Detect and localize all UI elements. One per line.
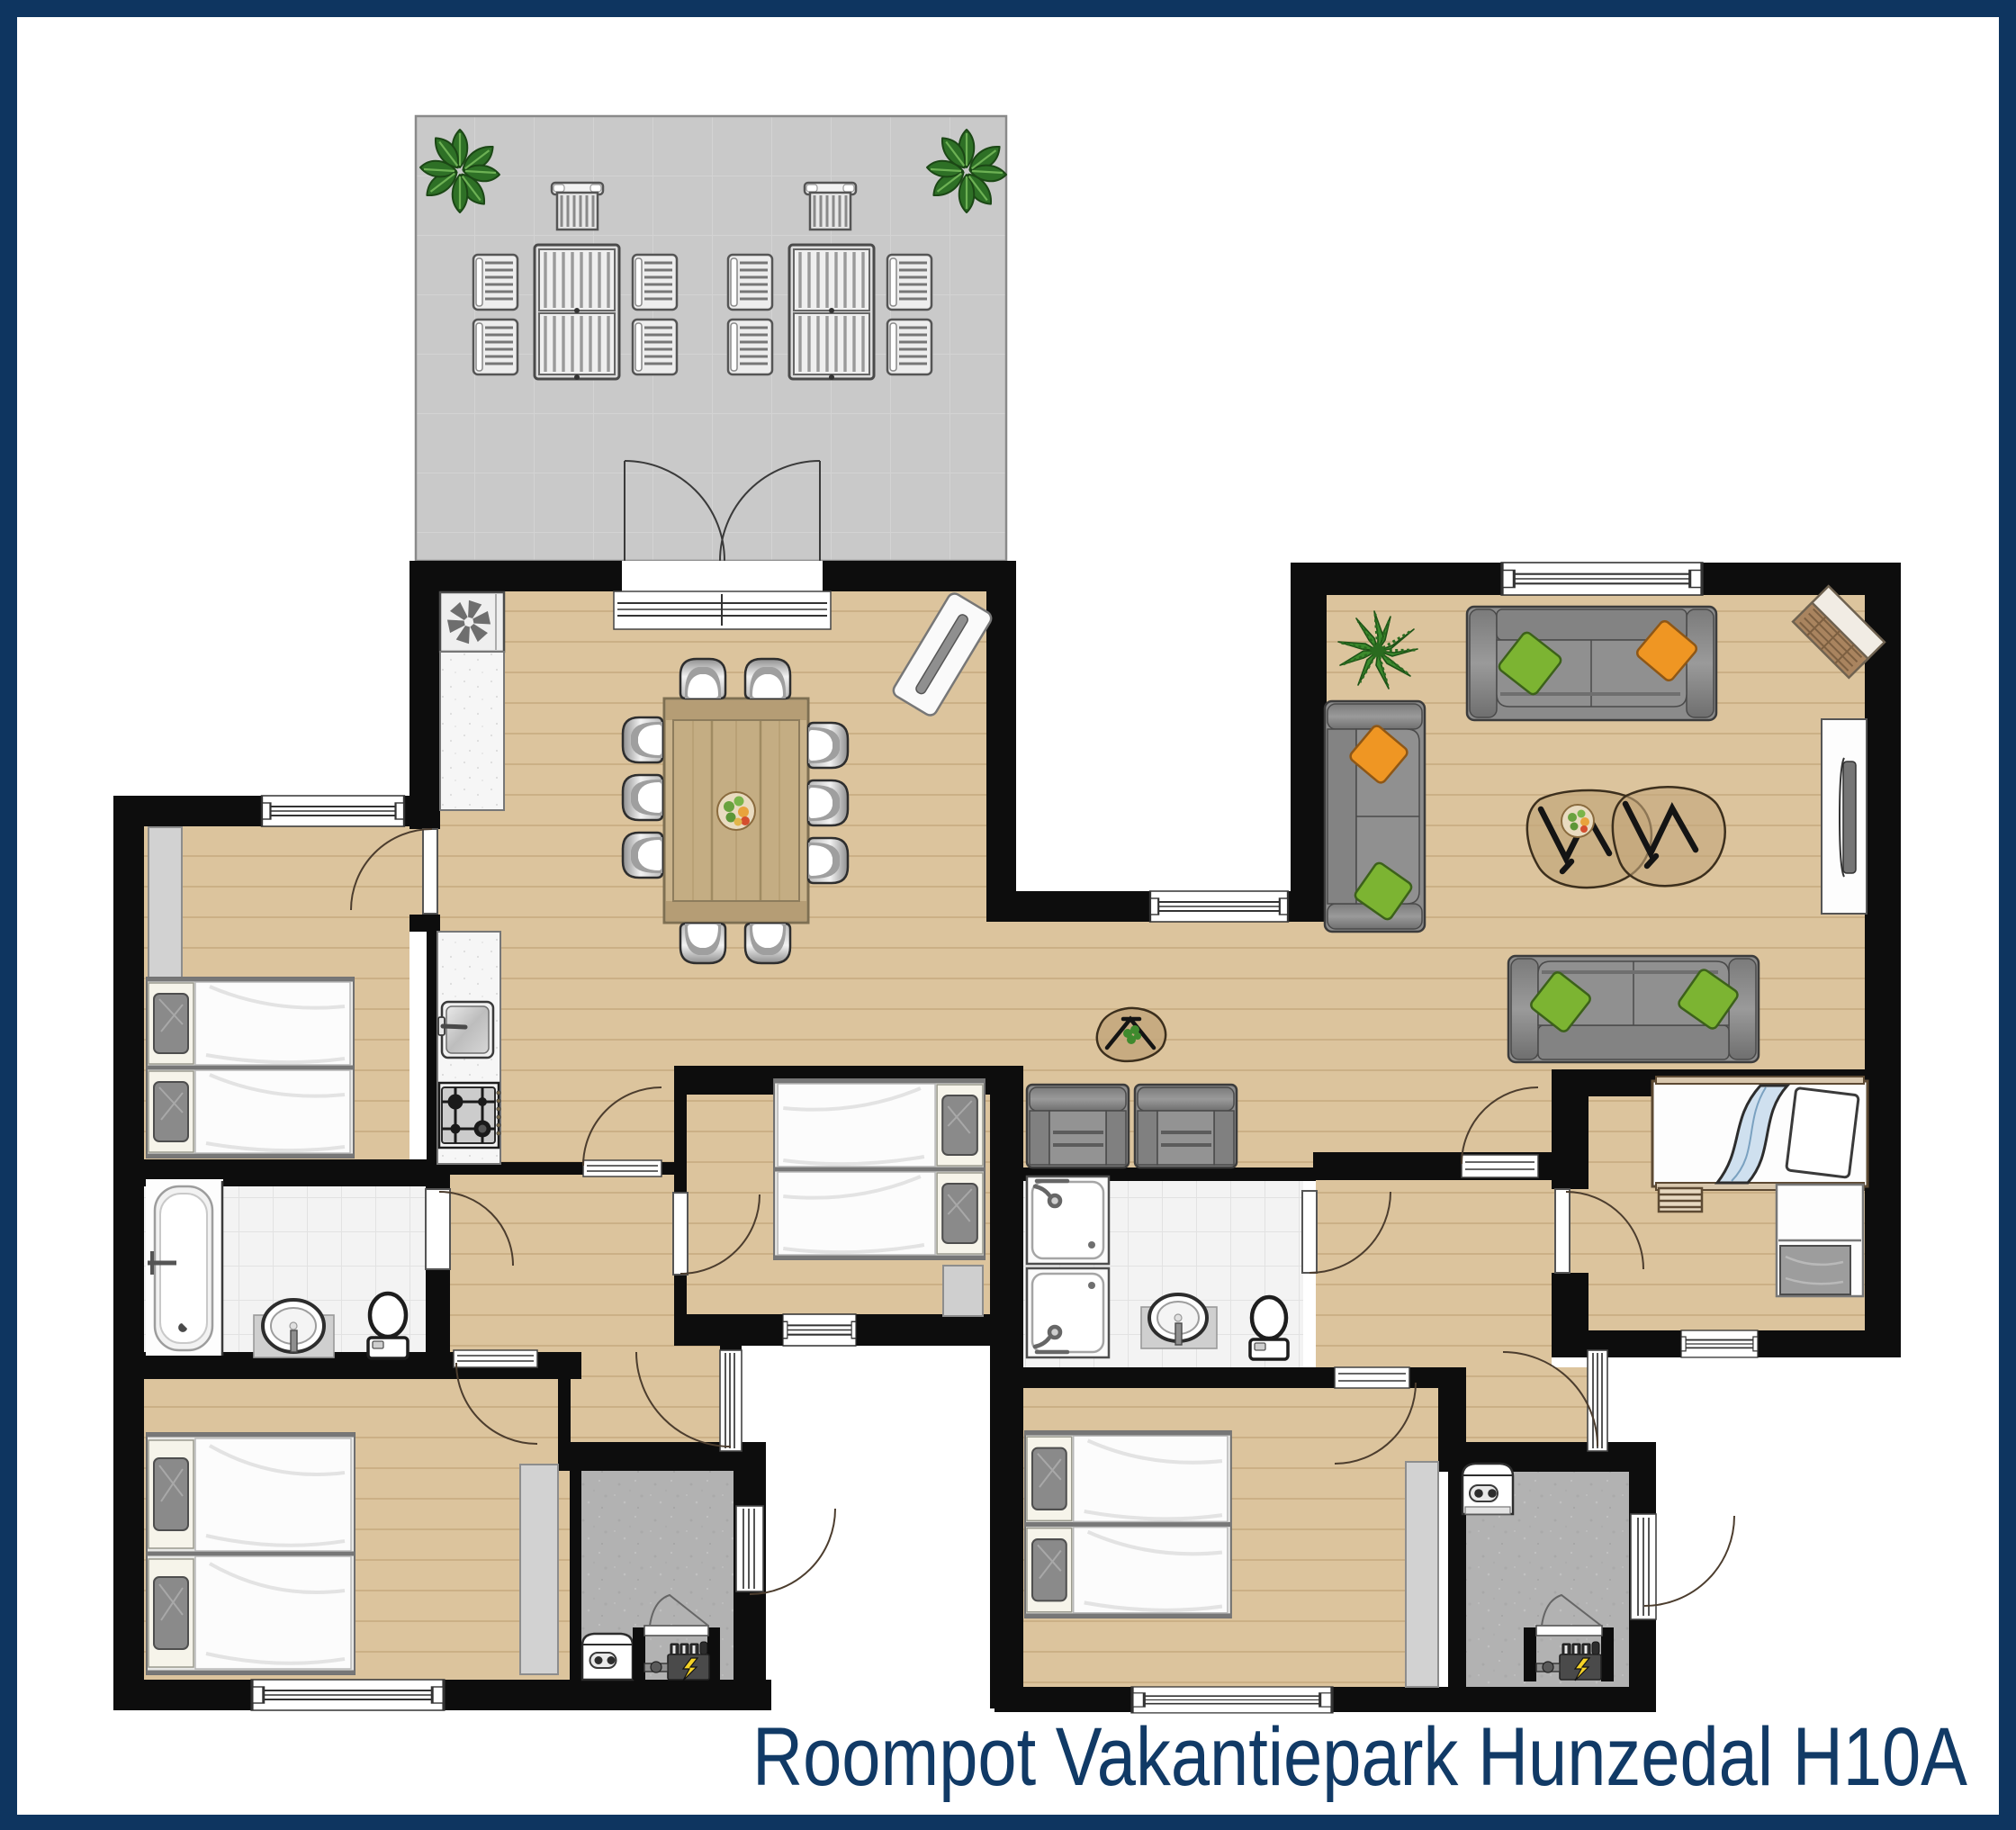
- svg-text:Roompot Vakantiepark Hunzedal: Roompot Vakantiepark Hunzedal H10A: [752, 1711, 1968, 1803]
